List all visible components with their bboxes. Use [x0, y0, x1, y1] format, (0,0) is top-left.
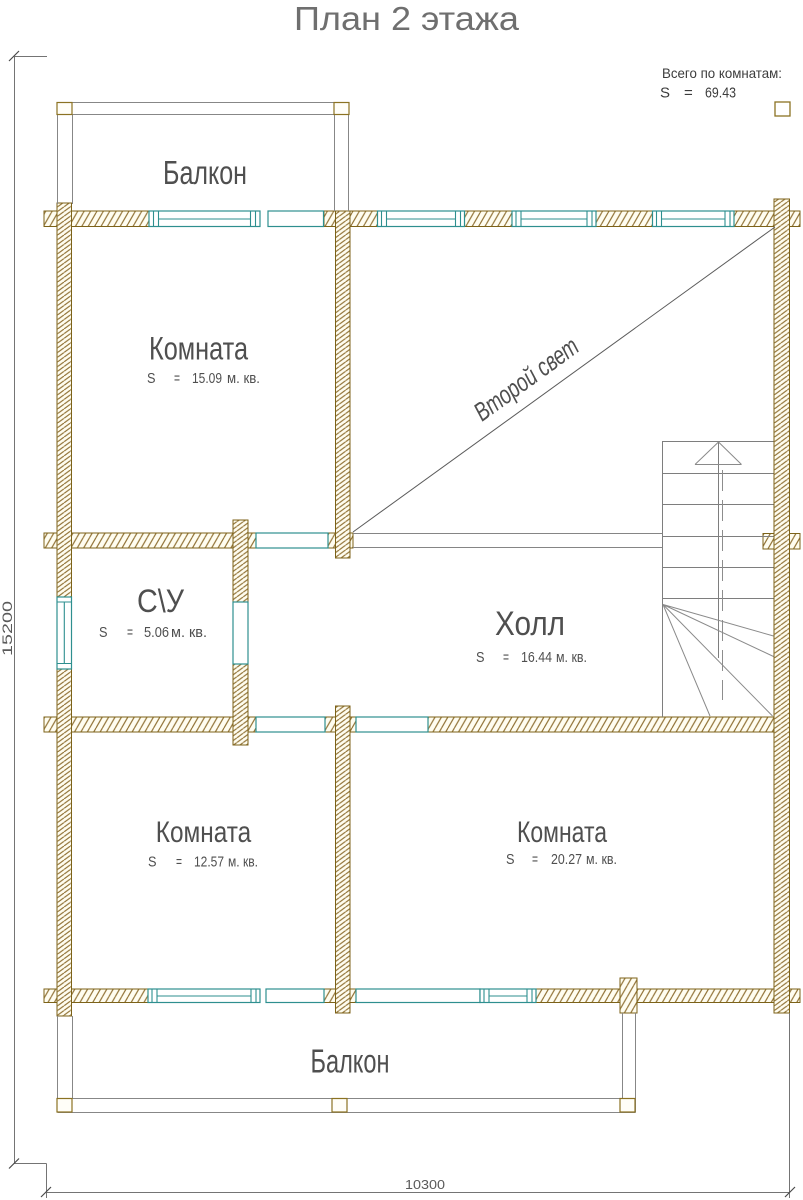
svg-text:Всего по комнатам:: Всего по комнатам:	[662, 65, 782, 81]
svg-text:Балкон: Балкон	[163, 154, 247, 191]
svg-text:S=16.44м. кв.: S=16.44м. кв.	[476, 650, 587, 666]
svg-text:S=20.27м. кв.: S=20.27м. кв.	[506, 852, 617, 868]
svg-text:Комната: Комната	[156, 816, 252, 849]
svg-text:План 2 этажа: План 2 этажа	[294, 0, 520, 37]
svg-text:Комната: Комната	[517, 816, 607, 849]
svg-text:S=15.09м. кв.: S=15.09м. кв.	[147, 371, 260, 387]
svg-text:S=5.06м. кв.: S=5.06м. кв.	[99, 625, 207, 641]
svg-text:С\У: С\У	[137, 583, 185, 619]
svg-text:S=12.57м. кв.: S=12.57м. кв.	[148, 855, 258, 871]
svg-text:Балкон: Балкон	[311, 1043, 390, 1080]
svg-text:Холл: Холл	[495, 605, 565, 643]
svg-text:15200: 15200	[0, 601, 15, 656]
svg-text:Комната: Комната	[149, 331, 248, 367]
svg-text:10300: 10300	[405, 1177, 445, 1192]
svg-text:S=69.43: S=69.43	[660, 85, 736, 102]
svg-text:Второй свет: Второй свет	[468, 331, 584, 427]
